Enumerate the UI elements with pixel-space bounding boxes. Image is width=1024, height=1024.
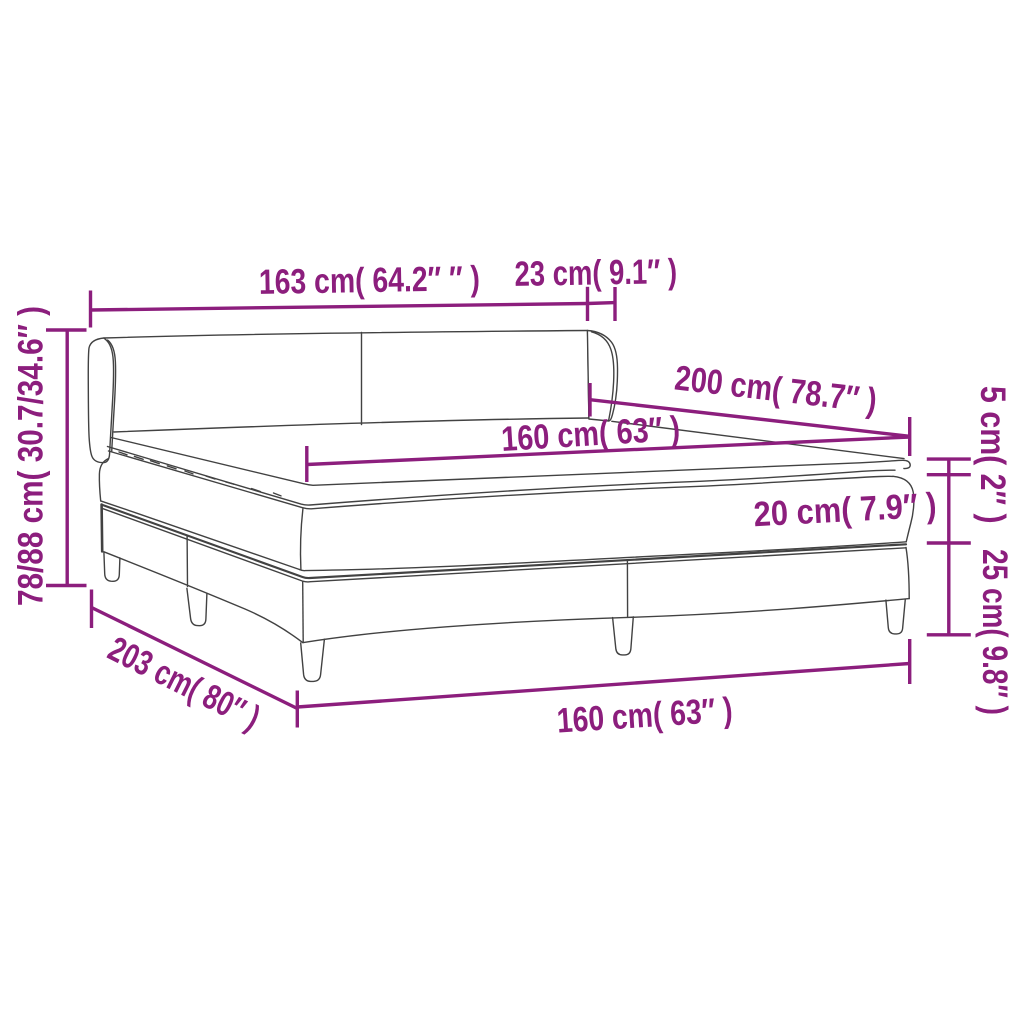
svg-text:25 cm( 9.8″ ): 25 cm( 9.8″ ): [975, 549, 1014, 715]
svg-text:163 cm( 64.2″ ″ ): 163 cm( 64.2″ ″ ): [259, 259, 481, 302]
svg-text:23 cm( 9.1″ ): 23 cm( 9.1″ ): [514, 252, 677, 294]
svg-text:5 cm( 2″ ): 5 cm( 2″ ): [973, 386, 1012, 524]
svg-text:78/88 cm( 30.7/34.6″ ): 78/88 cm( 30.7/34.6″ ): [12, 306, 51, 606]
